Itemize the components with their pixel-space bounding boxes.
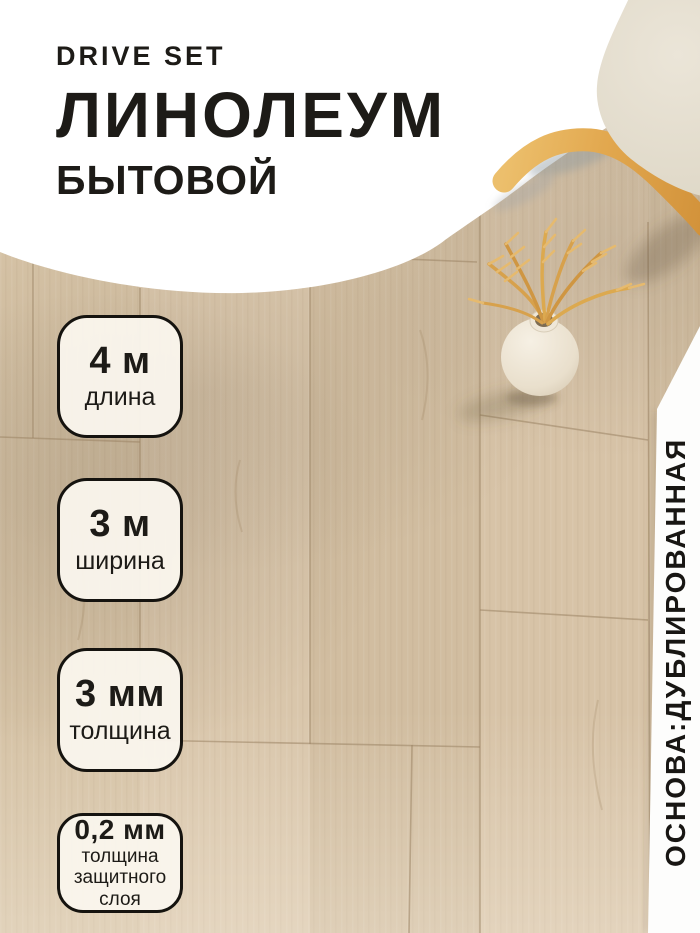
subtitle: БЫТОВОЙ [56, 156, 446, 205]
spec-label: длина [85, 383, 156, 411]
base-type-vertical-label: ОСНОВА:ДУБЛИРОВАННАЯ [660, 443, 692, 867]
spec-value: 0,2 мм [74, 815, 165, 844]
spec-badge-thickness: 3 мм толщина [57, 648, 183, 772]
spec-badge-protective-layer: 0,2 мм толщина защитного слоя [57, 813, 183, 913]
spec-label: толщина защитного слоя [62, 846, 178, 911]
wheat-stems [469, 219, 644, 324]
spec-value: 4 м [89, 342, 150, 382]
spec-badge-length: 4 м длина [57, 315, 183, 438]
spec-badge-width: 3 м ширина [57, 478, 183, 602]
spec-value: 3 мм [75, 675, 165, 715]
title-block: DRIVE SET ЛИНОЛЕУМ БЫТОВОЙ [56, 40, 446, 205]
spec-label: толщина [69, 717, 170, 745]
brand-line: DRIVE SET [56, 40, 446, 72]
spec-label: ширина [75, 547, 165, 575]
spec-value: 3 м [89, 505, 150, 545]
page-title: ЛИНОЛЕУМ [56, 82, 446, 149]
product-image: DRIVE SET ЛИНОЛЕУМ БЫТОВОЙ 4 м длина 3 м… [0, 0, 700, 933]
